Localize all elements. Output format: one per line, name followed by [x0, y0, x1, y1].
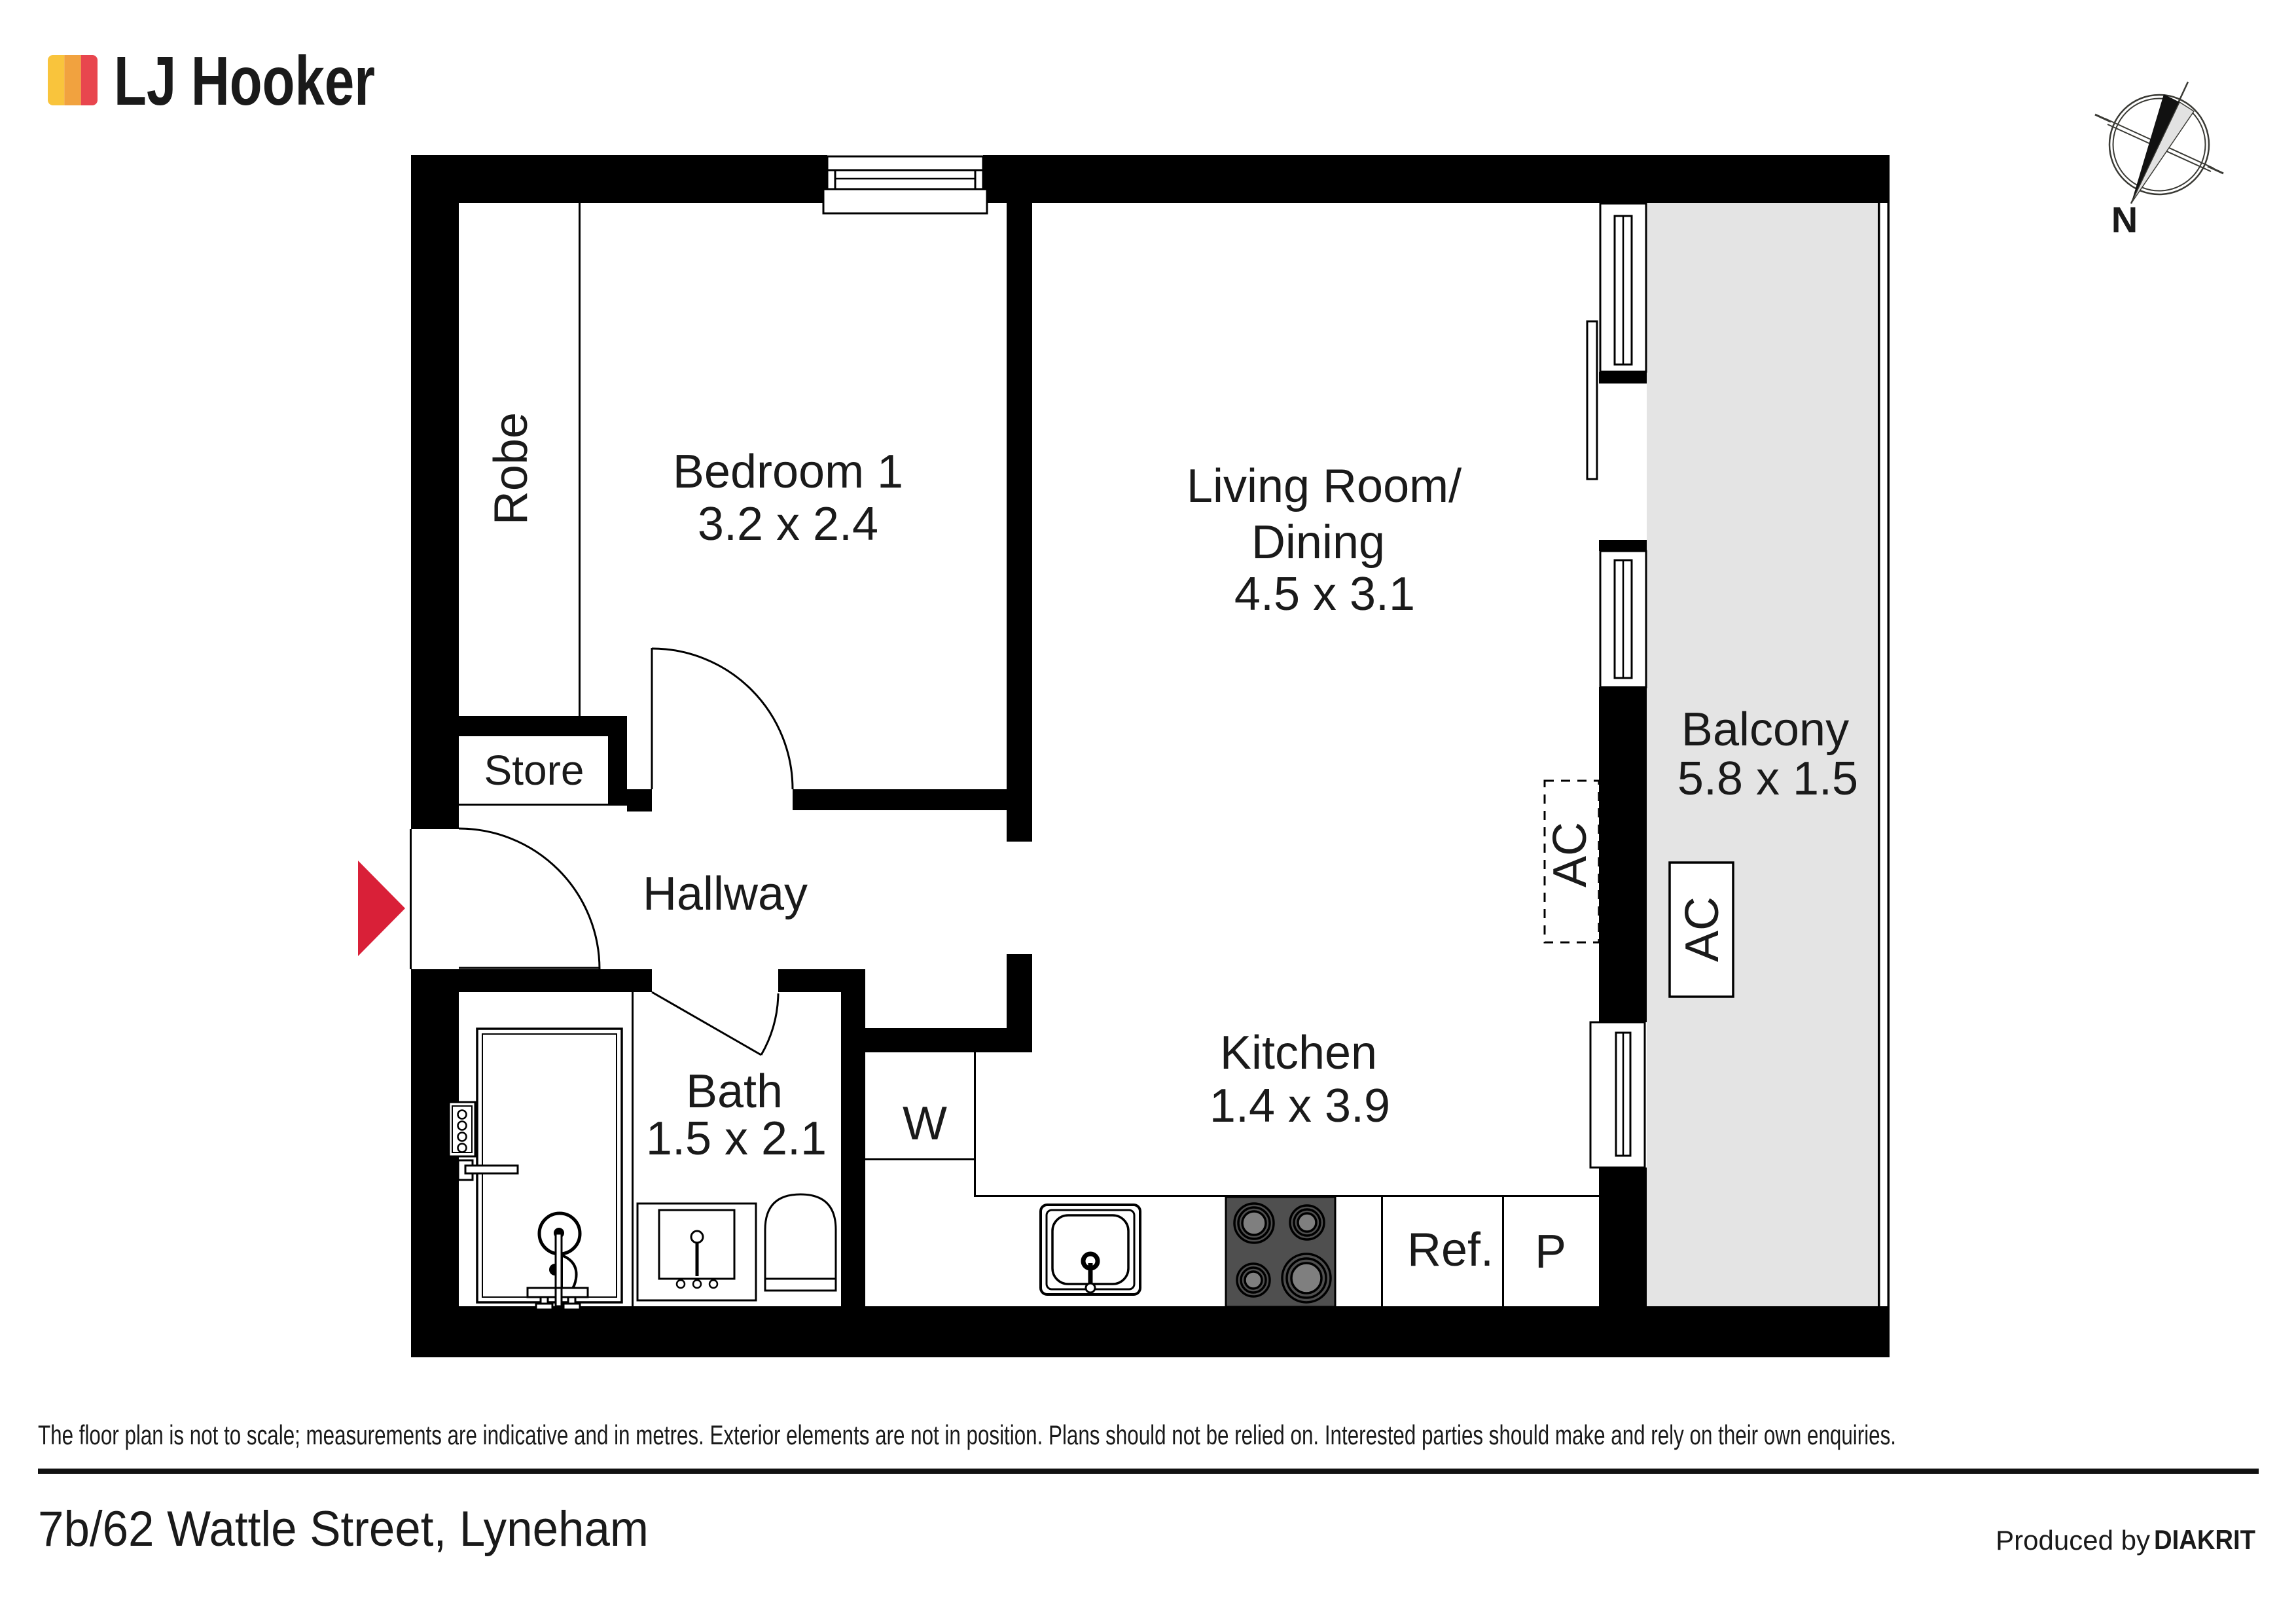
- svg-text:1.4 x 3.9: 1.4 x 3.9: [1210, 1080, 1390, 1132]
- svg-text:4.5 x 3.1: 4.5 x 3.1: [1234, 568, 1415, 620]
- svg-text:Robe: Robe: [485, 412, 537, 525]
- svg-text:AC: AC: [1676, 897, 1729, 962]
- svg-text:1.5 x 2.1: 1.5 x 2.1: [646, 1113, 827, 1165]
- svg-text:5.8 x 1.5: 5.8 x 1.5: [1677, 753, 1858, 805]
- svg-text:Store: Store: [484, 747, 584, 794]
- svg-text:7b/62 Wattle Street, Lyneham: 7b/62 Wattle Street, Lyneham: [38, 1501, 649, 1557]
- svg-text:The floor plan is not to scale: The floor plan is not to scale; measurem…: [38, 1419, 1896, 1450]
- svg-text:LJ Hooker: LJ Hooker: [114, 43, 375, 120]
- svg-text:N: N: [2111, 199, 2138, 240]
- svg-text:Kitchen: Kitchen: [1220, 1027, 1377, 1079]
- svg-text:3.2 x 2.4: 3.2 x 2.4: [698, 498, 878, 550]
- svg-text:Balcony: Balcony: [1681, 704, 1849, 756]
- svg-text:Produced by: Produced by: [1996, 1525, 2150, 1556]
- svg-text:Living Room/: Living Room/: [1187, 460, 1462, 512]
- svg-text:DIAKRIT: DIAKRIT: [2154, 1524, 2255, 1555]
- svg-text:AC: AC: [1544, 822, 1596, 887]
- svg-text:W: W: [903, 1097, 947, 1150]
- svg-text:Hallway: Hallway: [643, 868, 808, 920]
- svg-text:Ref.: Ref.: [1407, 1224, 1494, 1276]
- svg-text:Dining: Dining: [1251, 516, 1385, 569]
- svg-text:P: P: [1535, 1226, 1566, 1278]
- svg-text:Bedroom 1: Bedroom 1: [673, 446, 903, 498]
- svg-text:Bath: Bath: [686, 1065, 783, 1118]
